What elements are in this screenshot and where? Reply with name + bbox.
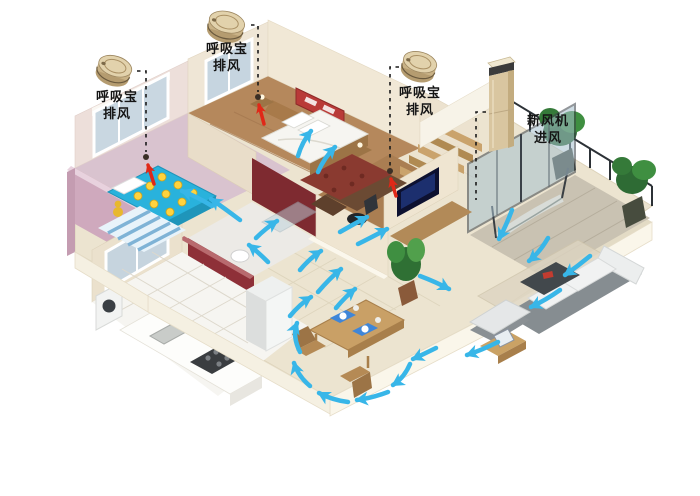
apartment-model xyxy=(0,0,700,496)
fresh-air-label: 新风机 进风 xyxy=(506,112,590,146)
exhaust-vent-dot xyxy=(387,168,393,174)
exhaust-label-line1: 呼吸宝 xyxy=(80,88,154,105)
exhaust-label-line2: 排风 xyxy=(190,57,264,74)
exhaust-device-icon xyxy=(93,51,135,90)
exhaust-vent-dot xyxy=(255,94,261,100)
exhaust-label-line2: 排风 xyxy=(80,105,154,122)
fresh-air-label-line2: 进风 xyxy=(506,129,590,146)
exhaust-label: 呼吸宝 排风 xyxy=(383,84,457,118)
exhaust-label-line1: 呼吸宝 xyxy=(383,84,457,101)
fresh-air-label-line1: 新风机 xyxy=(506,112,590,129)
toilet xyxy=(231,250,249,262)
refrigerator xyxy=(246,276,292,351)
exhaust-device-icon xyxy=(398,48,439,86)
exhaust-label: 呼吸宝 排风 xyxy=(80,88,154,122)
exhaust-label: 呼吸宝 排风 xyxy=(190,40,264,74)
exhaust-vent-dot xyxy=(143,154,149,160)
ventilation-diagram: 呼吸宝 排风 呼吸宝 排风 呼吸宝 排风 新风机 进风 xyxy=(0,0,700,496)
exhaust-label-line2: 排风 xyxy=(383,101,457,118)
exhaust-label-line1: 呼吸宝 xyxy=(190,40,264,57)
